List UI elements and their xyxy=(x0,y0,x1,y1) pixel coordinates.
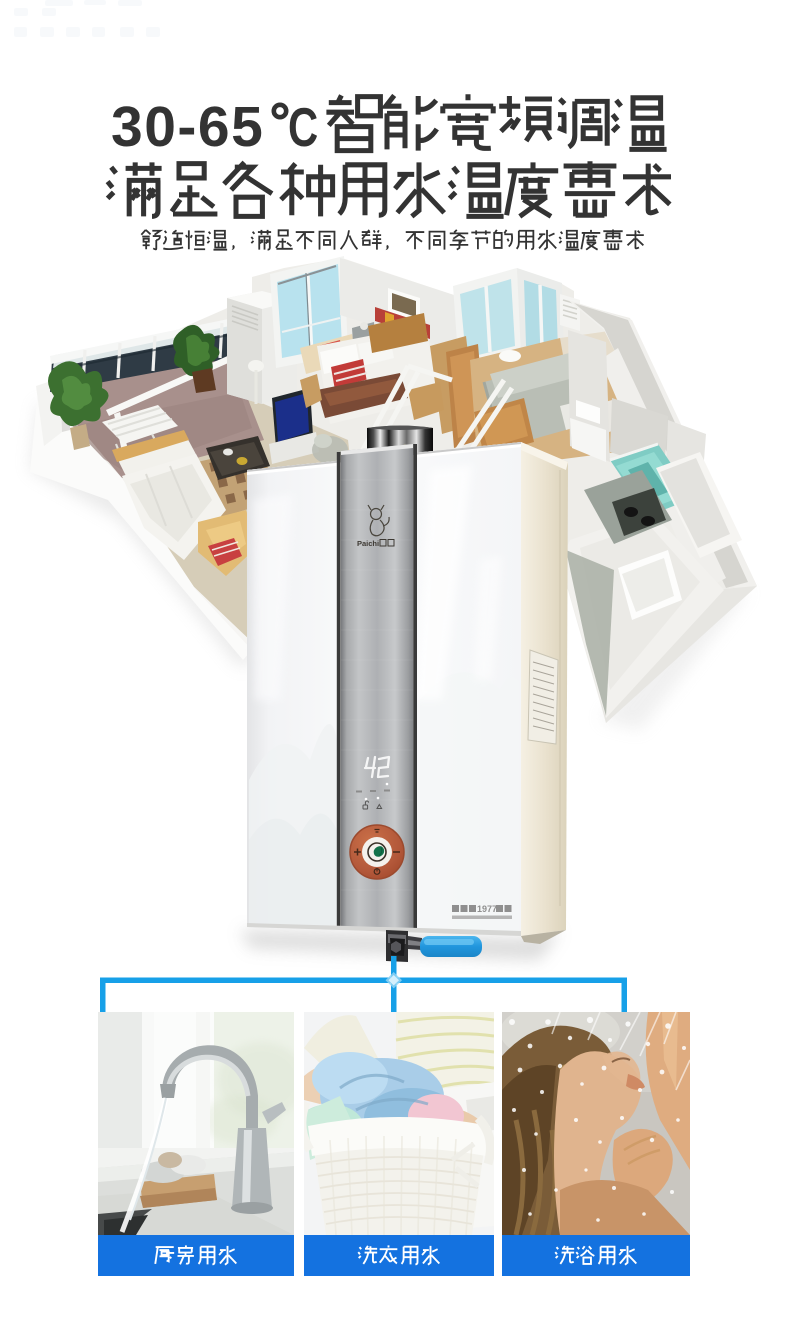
svg-text:Paichi: Paichi xyxy=(357,539,379,548)
svg-text:C: C xyxy=(288,98,318,159)
svg-text:1977: 1977 xyxy=(477,904,497,914)
svg-text:30-65: 30-65 xyxy=(111,95,264,159)
